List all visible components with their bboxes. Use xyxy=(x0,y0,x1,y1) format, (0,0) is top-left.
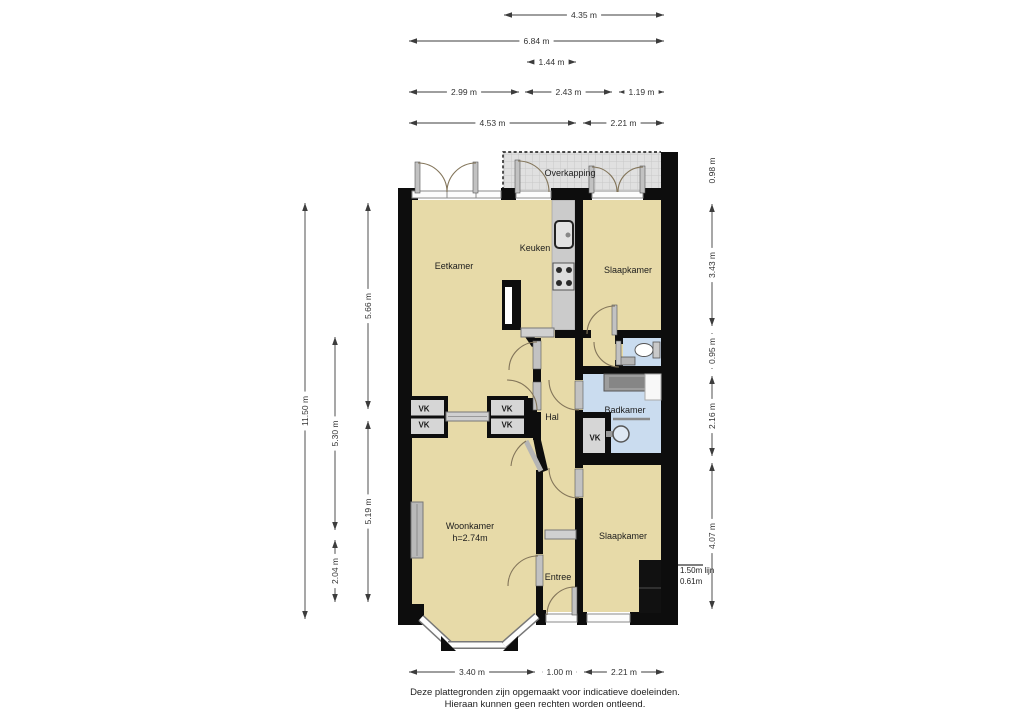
closet-label: VK xyxy=(501,421,512,430)
dimension-label: 2.43 m xyxy=(556,87,582,97)
floorplan-page: 1.50m lijn 0.61m 4.35 m6.84 m1.44 m2.99 … xyxy=(0,0,1018,720)
dimension-label: 0.95 m xyxy=(707,338,717,364)
washbasin-icon xyxy=(613,426,629,442)
room-label-woonkamer-height: h=2.74m xyxy=(452,533,487,543)
dimension-label: 0.98 m xyxy=(707,158,717,184)
dimension-label: 3.43 m xyxy=(707,252,717,278)
dimension-label: 2.16 m xyxy=(707,403,717,429)
dimension-label: 3.40 m xyxy=(459,667,485,677)
dimension-label: 5.66 m xyxy=(363,293,373,319)
shower-tray-icon xyxy=(645,374,661,400)
sliding-door xyxy=(545,530,576,539)
room-label-eetkamer: Eetkamer xyxy=(435,261,474,271)
dimension-label: 1.00 m xyxy=(547,667,573,677)
dimension-label: 5.30 m xyxy=(330,421,340,447)
sliding-door xyxy=(521,328,554,337)
dimension-label: 1.19 m xyxy=(629,87,655,97)
dimension-label: 4.07 m xyxy=(707,523,717,549)
dimension-label: 4.53 m xyxy=(480,118,506,128)
closet-label: VK xyxy=(589,434,600,443)
room-label-keuken: Keuken xyxy=(520,243,551,253)
corner-block xyxy=(639,560,661,613)
closet-label: VK xyxy=(418,421,429,430)
footer-disclaimer-line1: Deze plattegronden zijn opgemaakt voor i… xyxy=(410,687,680,698)
stove-icon xyxy=(553,263,574,290)
room-label-badkamer: Badkamer xyxy=(604,405,645,415)
room-label-slaapkamer-2: Slaapkamer xyxy=(599,531,647,541)
room-label-slaapkamer-1: Slaapkamer xyxy=(604,265,652,275)
dimension-label: 2.99 m xyxy=(451,87,477,97)
dimension-label: 11.50 m xyxy=(300,396,310,426)
dimension-label: 6.84 m xyxy=(524,36,550,46)
chimney-flue xyxy=(505,287,512,324)
dimension-label: 1.44 m xyxy=(539,57,565,67)
height-line-value: 0.61m xyxy=(680,577,703,586)
dimension-label: 4.35 m xyxy=(571,10,597,20)
height-line-annotation: 1.50m lijn 0.61m xyxy=(678,565,714,586)
room-label-hal: Hal xyxy=(545,412,559,422)
closet-label: VK xyxy=(501,405,512,414)
room-label-overkapping: Overkapping xyxy=(544,168,595,178)
dimension-label: 2.21 m xyxy=(611,667,637,677)
dimension-label: 2.21 m xyxy=(611,118,637,128)
dimension-label: 5.19 m xyxy=(363,499,373,525)
closet-label: VK xyxy=(418,405,429,414)
toilet-sink-icon xyxy=(620,357,635,365)
footer-disclaimer-line2: Hieraan kunnen geen rechten worden ontle… xyxy=(445,699,646,710)
floorplan-drawing: 1.50m lijn 0.61m 4.35 m6.84 m1.44 m2.99 … xyxy=(0,0,1018,720)
dimension-label: 2.04 m xyxy=(330,558,340,584)
toilet-icon xyxy=(635,344,653,357)
room-label-entree: Entree xyxy=(545,572,572,582)
height-line-label: 1.50m lijn xyxy=(680,566,714,575)
room-label-woonkamer: Woonkamer xyxy=(446,521,494,531)
